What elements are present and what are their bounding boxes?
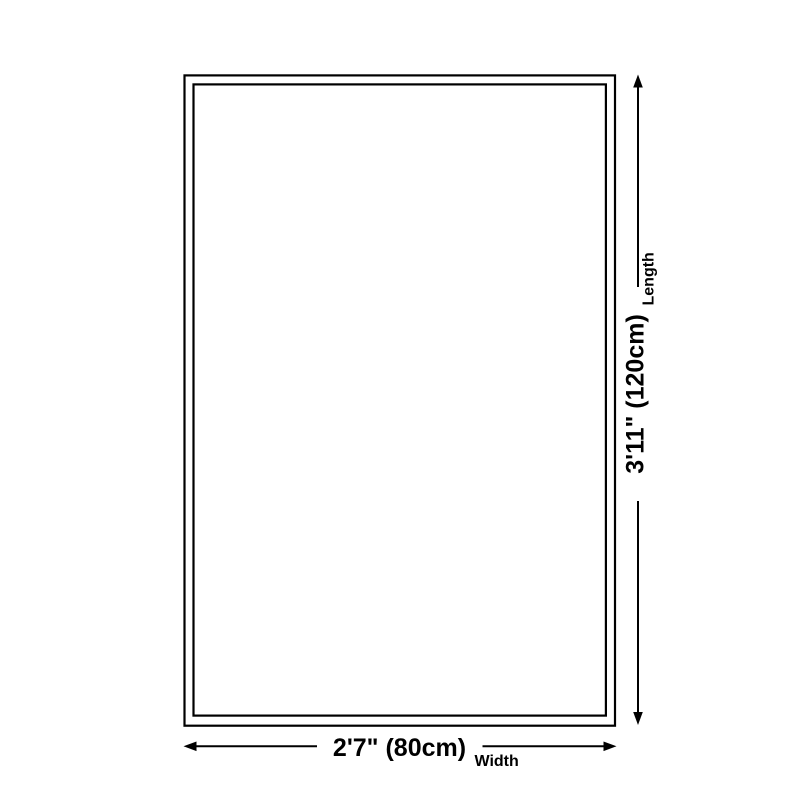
svg-text:Width: Width (475, 753, 519, 770)
svg-text:3'11" (120cm): 3'11" (120cm) (622, 314, 650, 474)
svg-text:2'7" (80cm): 2'7" (80cm) (333, 734, 466, 762)
svg-text:Length: Length (641, 252, 658, 305)
